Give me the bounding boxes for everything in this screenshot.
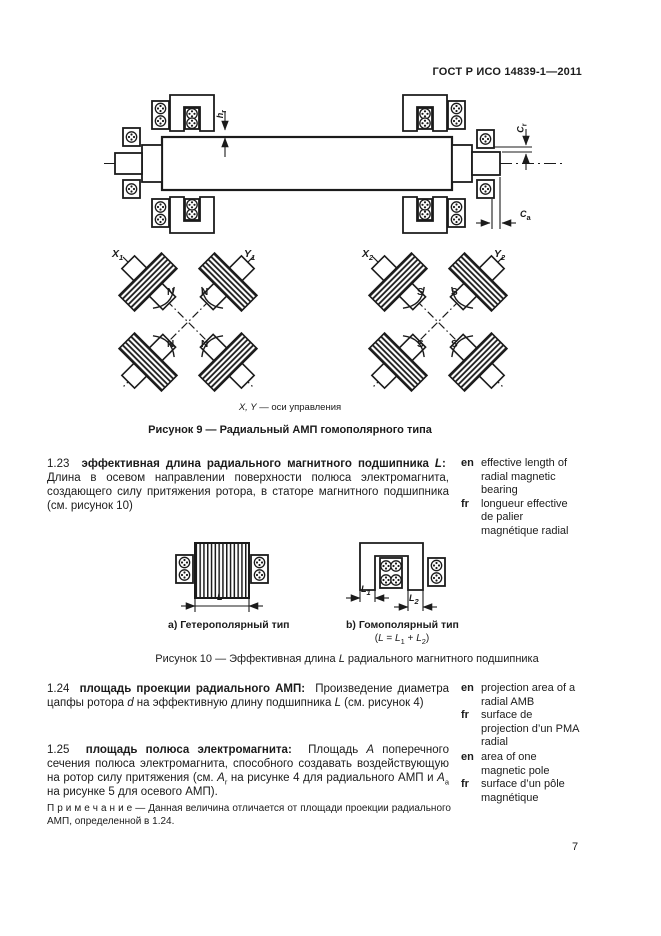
translation-en-text: projection area of a radial AMB	[481, 682, 575, 709]
dim-label-l: L	[217, 592, 223, 602]
document-page: ГОСТ Р ИСО 14839-1—2011	[0, 0, 661, 936]
stator-assembly-top-left	[152, 95, 214, 131]
dim-l1-sub: 1	[367, 588, 371, 597]
definition-1-25: 1.25 площадь полюса электромагнита: Площ…	[47, 743, 585, 805]
definition-1-24: 1.24 площадь проекции радиального АМП: П…	[47, 682, 585, 750]
translation-fr: fr surface d’un pôle magnétique	[461, 778, 583, 805]
dim-label-cr: Cr	[516, 123, 526, 132]
dim-cr-sub: r	[520, 123, 529, 126]
pole-label-s: S	[417, 339, 424, 350]
translation-fr-text: surface d’un pôle magnétique	[481, 778, 565, 805]
note-1-25: П р и м е ч а н и е — Данная величина от…	[47, 803, 451, 828]
definition-1-24-text: 1.24 площадь проекции радиального АМП: П…	[47, 682, 449, 710]
stator-assembly-bottom-right	[403, 197, 465, 233]
axis-x2-base: X	[362, 248, 369, 260]
figure9-rotor-drawing: hr Cr Ca	[88, 85, 578, 237]
translation-en-text: area of one magnetic pole	[481, 751, 550, 778]
dim-hr-sub: r	[219, 110, 228, 113]
dim-label-hr: hr	[215, 110, 225, 118]
dim-ca-sub: a	[527, 213, 531, 222]
cross-section-plane2	[357, 246, 519, 398]
doc-code: ГОСТ Р ИСО 14839-1—2011	[432, 66, 582, 78]
translation-fr: fr longueur effective de palier magnétiq…	[461, 498, 583, 539]
figure9-caption: Рисунок 9 — Радиальный АМП гомополярного…	[45, 424, 535, 436]
lang-label-fr: fr	[461, 778, 481, 805]
translation-en-text: effective length of radial magnetic bear…	[481, 457, 567, 498]
pole-label-n: N	[201, 287, 208, 298]
axis-x1-base: X	[112, 248, 119, 260]
stator-assembly-bottom-left	[152, 197, 214, 233]
dim-label-ca: Ca	[520, 209, 531, 219]
dim-label-l1: L1	[361, 584, 371, 594]
pole-label-s: S	[451, 339, 458, 350]
dim-l2-sub: 2	[415, 597, 419, 606]
cross-section-plane1	[107, 246, 269, 398]
pole-label-n: N	[167, 287, 174, 298]
stator-assembly-top-right	[403, 95, 465, 131]
lang-label-en: en	[461, 457, 481, 498]
figure9-legend: X, Y — оси управления	[45, 402, 535, 413]
translation-block-1-23: en effective length of radial magnetic b…	[461, 457, 583, 538]
homopolar-type-drawing	[346, 543, 445, 611]
translation-en: en area of one magnetic pole	[461, 751, 583, 778]
axis-label-y2: Y2	[494, 248, 505, 260]
definition-1-25-text: 1.25 площадь полюса электромагнита: Площ…	[47, 743, 449, 799]
figure10-drawing: L L1 L2 а) Гетерополярный тип b) Гомопол…	[150, 540, 490, 650]
dim-label-l2: L2	[409, 593, 419, 603]
axis-label-y1: Y1	[244, 248, 255, 260]
translation-block-1-25: en area of one magnetic pole fr surface …	[461, 751, 583, 805]
lang-label-en: en	[461, 682, 481, 709]
lang-label-en: en	[461, 751, 481, 778]
figure10a-label: а) Гетерополярный тип	[168, 619, 276, 631]
translation-en: en projection area of a radial AMB	[461, 682, 583, 709]
lang-label-fr: fr	[461, 498, 481, 539]
axis-y1-base: Y	[244, 248, 251, 260]
axis-y2-base: Y	[494, 248, 501, 260]
figure10-svg	[150, 540, 490, 618]
pole-label-s: S	[451, 287, 458, 298]
translation-en: en effective length of radial magnetic b…	[461, 457, 583, 498]
dim-hr-base: h	[215, 113, 225, 119]
pole-label-n: N	[167, 339, 174, 350]
pole-label-s: S	[417, 287, 424, 298]
figure9-cross-sections: X1 Y1 X2 Y2 N N N N S S S S	[100, 246, 560, 398]
dim-l-base: L	[217, 592, 223, 602]
axis-label-x1: X1	[112, 248, 123, 260]
page-number: 7	[572, 841, 578, 853]
translation-fr-text: longueur effective de palier magnétique …	[481, 498, 568, 539]
translation-block-1-24: en projection area of a radial AMB fr su…	[461, 682, 583, 750]
axis-label-x2: X2	[362, 248, 373, 260]
axis-x2-sub: 2	[369, 253, 373, 262]
dim-cr-base: C	[516, 126, 526, 133]
axis-y2-sub: 2	[501, 253, 505, 262]
definition-1-23: 1.23 эффективная длина радиального магни…	[47, 457, 585, 538]
figure9-rotor-svg	[88, 85, 578, 237]
axis-y1-sub: 1	[251, 253, 255, 262]
figure10b-formula: (L = L1 + L2)	[346, 633, 458, 644]
definition-1-23-text: 1.23 эффективная длина радиального магни…	[47, 457, 449, 513]
shaft	[115, 137, 500, 190]
figure10-caption: Рисунок 10 — Эффективная длина L радиаль…	[60, 653, 634, 665]
figure9-cross-svg	[100, 246, 560, 398]
figure10b-label: b) Гомополярный тип	[346, 619, 458, 631]
pole-label-n: N	[201, 339, 208, 350]
axis-x1-sub: 1	[119, 253, 123, 262]
